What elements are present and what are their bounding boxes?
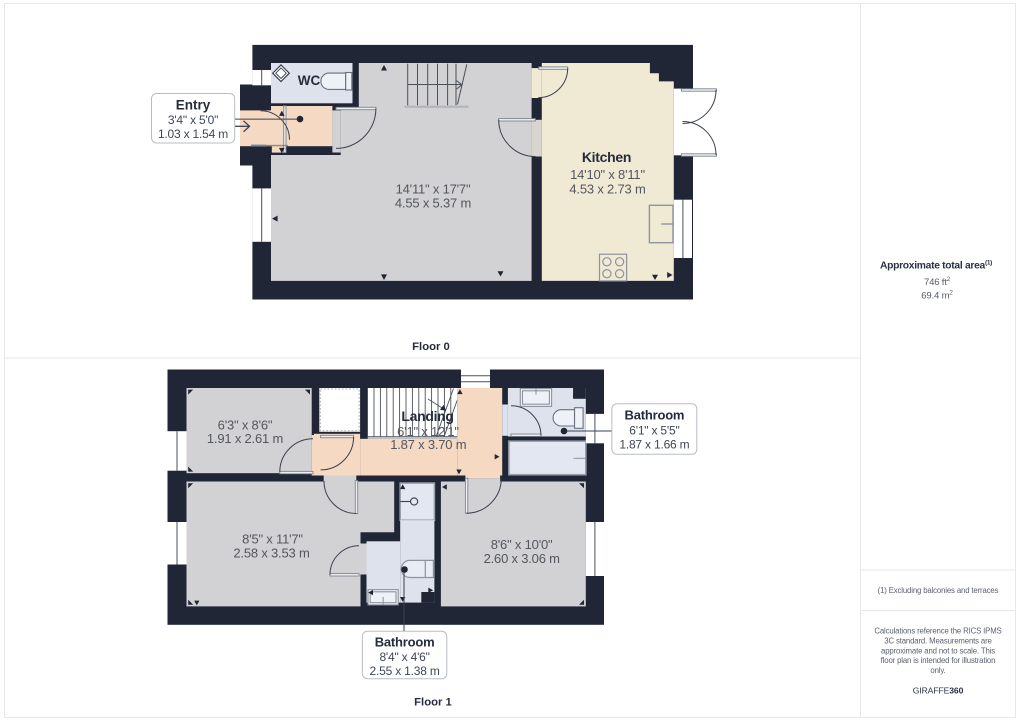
svg-text:Landing: Landing	[401, 408, 453, 424]
svg-text:1.91 x 2.61 m: 1.91 x 2.61 m	[207, 431, 283, 446]
svg-text:4.55 x 5.37 m: 4.55 x 5.37 m	[395, 195, 471, 210]
svg-text:1.87 x 1.66 m: 1.87 x 1.66 m	[619, 438, 689, 452]
svg-text:GIRAFFE360: GIRAFFE360	[913, 685, 964, 695]
svg-text:1.03 x 1.54 m: 1.03 x 1.54 m	[158, 127, 228, 141]
svg-text:Bathroom: Bathroom	[625, 407, 685, 422]
svg-text:14'11" x 17'7": 14'11" x 17'7"	[396, 181, 471, 196]
svg-text:3'4" x 5'0": 3'4" x 5'0"	[168, 113, 218, 127]
svg-text:2.60 x 3.06 m: 2.60 x 3.06 m	[484, 551, 560, 566]
svg-text:2.55 x 1.38 m: 2.55 x 1.38 m	[370, 664, 440, 678]
svg-text:8'5" x 11'7": 8'5" x 11'7"	[242, 531, 303, 546]
svg-text:3C standard. Measurements are: 3C standard. Measurements are	[884, 636, 991, 645]
svg-text:1.87 x 3.70 m: 1.87 x 3.70 m	[390, 437, 466, 452]
svg-text:14'10" x 8'11": 14'10" x 8'11"	[570, 167, 645, 182]
svg-text:746 ft2: 746 ft2	[924, 276, 951, 288]
svg-text:Floor 1: Floor 1	[414, 696, 452, 708]
svg-text:Bathroom: Bathroom	[375, 635, 435, 650]
svg-text:4.53 x 2.73 m: 4.53 x 2.73 m	[569, 182, 645, 197]
svg-text:8'6" x 10'0": 8'6" x 10'0"	[491, 537, 553, 552]
svg-text:2.58 x 3.53 m: 2.58 x 3.53 m	[233, 545, 309, 560]
svg-text:Kitchen: Kitchen	[582, 149, 631, 165]
svg-text:Calculations reference the RIC: Calculations reference the RICS IPMS	[874, 627, 1001, 636]
svg-text:only.: only.	[930, 666, 945, 675]
svg-text:Floor 0: Floor 0	[412, 341, 450, 353]
svg-text:Approximate total area(1): Approximate total area(1)	[880, 260, 992, 272]
svg-text:approximate and not to scale.: approximate and not to scale. This	[881, 646, 995, 655]
svg-text:69.4 m2: 69.4 m2	[921, 290, 953, 302]
svg-text:(1) Excluding balconies and te: (1) Excluding balconies and terraces	[878, 586, 999, 595]
svg-text:Entry: Entry	[176, 97, 211, 112]
svg-text:6'1" x 5'5": 6'1" x 5'5"	[629, 424, 679, 438]
svg-text:6'3" x 8'6": 6'3" x 8'6"	[218, 417, 273, 432]
svg-text:floor plan is intended for ill: floor plan is intended for illustration	[881, 656, 996, 665]
svg-text:8'4" x 4'6": 8'4" x 4'6"	[379, 650, 429, 664]
svg-text:WC: WC	[298, 73, 321, 88]
